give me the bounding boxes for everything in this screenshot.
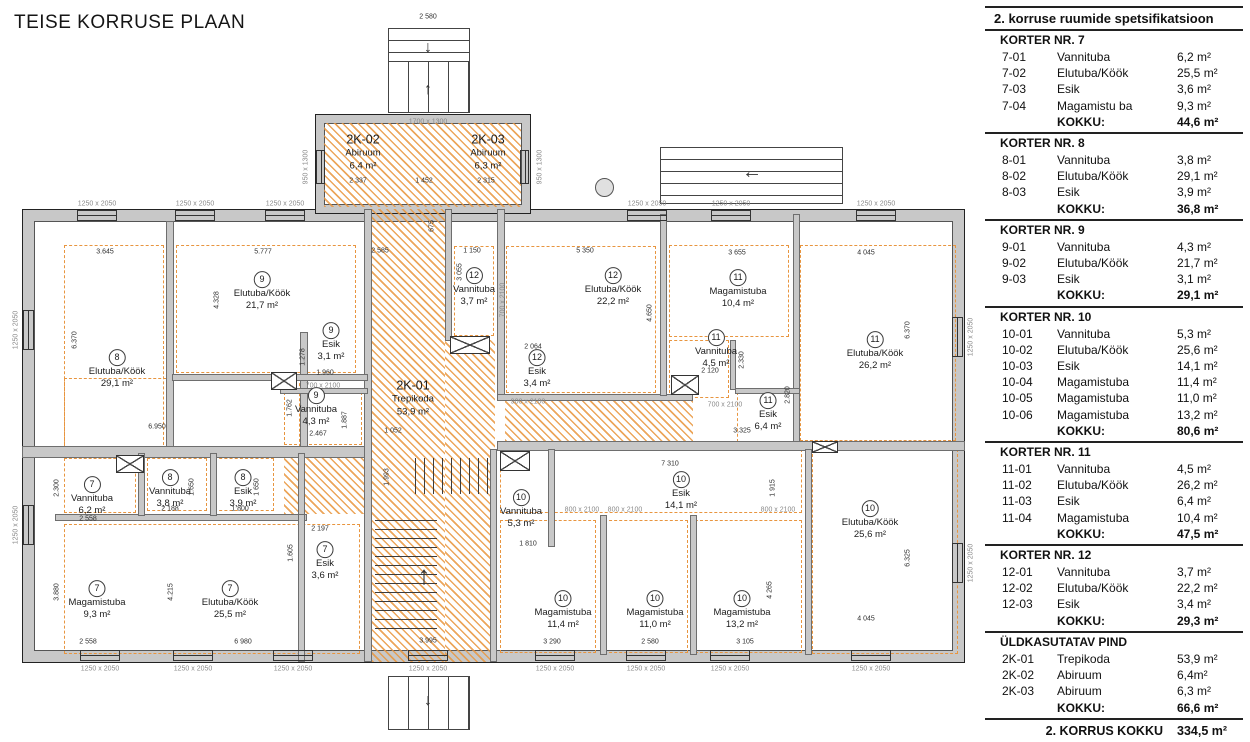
room-number-circle: 11 — [760, 392, 777, 409]
shaft-box — [450, 336, 490, 354]
total-label-cell: KOKKU: — [1057, 613, 1177, 629]
dimension-label: 7 310 — [661, 461, 679, 468]
opening-size-label: 1250 x 2050 — [627, 666, 666, 673]
spec-row: 8-03Esik3,9 m² — [985, 184, 1243, 200]
spacer-cell — [985, 700, 1057, 716]
room-code-cell: 11-03 — [985, 493, 1057, 509]
opening-size-label: 1250 x 2050 — [266, 201, 305, 208]
window — [856, 210, 896, 221]
wall — [166, 221, 174, 454]
dimension-label: 4.650 — [647, 304, 654, 322]
room-area: 26,2 m² — [859, 361, 891, 372]
window — [710, 650, 750, 661]
wall — [805, 449, 812, 655]
spec-row: 9-02Elutuba/Köök21,7 m² — [985, 255, 1243, 271]
room-label: 7Magamistuba9,3 m² — [68, 580, 125, 622]
opening-size-label: 800 x 2100 — [565, 507, 600, 514]
spec-section: KORTER NR. 88-01Vannituba3,8 m²8-02Elutu… — [985, 134, 1243, 221]
spec-row: 10-04Magamistuba11,4 m² — [985, 374, 1243, 390]
spec-section: KORTER NR. 1212-01Vannituba3,7 m²12-02El… — [985, 546, 1243, 633]
stair-treads — [415, 458, 489, 494]
room-name-cell: Magamistuba — [1057, 390, 1177, 406]
opening-size-label: 700 x 2100 — [306, 383, 341, 390]
spacer-cell — [985, 613, 1057, 629]
room-code-cell: 2K-03 — [985, 683, 1057, 699]
room-area-cell: 3,7 m² — [1177, 564, 1243, 580]
room-area-cell: 4,5 m² — [1177, 461, 1243, 477]
room-number-circle: 7 — [84, 476, 101, 493]
room-number-circle: 12 — [466, 267, 483, 284]
window — [80, 650, 120, 661]
opening-size-label: 800 x 2100 — [608, 507, 643, 514]
spec-row: 11-04Magamistuba10,4 m² — [985, 510, 1243, 526]
room-name: Magamistuba — [713, 607, 770, 618]
opening-size-label: 1250 x 2050 — [13, 311, 20, 350]
room-code-cell: 7-04 — [985, 98, 1057, 114]
room-name: Vannituba — [149, 486, 191, 497]
room-area: 25,5 m² — [214, 610, 246, 621]
room-number-circle: 11 — [730, 269, 747, 286]
room-name: Elutuba/Köök — [585, 284, 642, 295]
room-code-cell: 9-02 — [985, 255, 1057, 271]
spec-total-row: KOKKU:36,8 m² — [985, 201, 1243, 217]
room-name: Esik — [672, 488, 690, 499]
wall — [172, 374, 368, 381]
room-code-cell: 7-01 — [985, 49, 1057, 65]
room-area: 22,2 m² — [597, 297, 629, 308]
room-label: 12Elutuba/Köök22,2 m² — [585, 267, 642, 309]
total-label-cell: KOKKU: — [1057, 201, 1177, 217]
dimension-label: 1 150 — [463, 248, 481, 255]
opening-size-label: 1250 x 2050 — [536, 666, 575, 673]
dimension-label: 3.325 — [733, 428, 751, 435]
spec-section: ÜLDKASUTATAV PIND2K-01Trepikoda53,9 m²2K… — [985, 633, 1243, 720]
spec-section-title: KORTER NR. 11 — [985, 444, 1243, 461]
spec-row: 10-05Magamistuba11,0 m² — [985, 390, 1243, 406]
room-label: 11Vannituba4,5 m² — [695, 329, 737, 371]
hatch-area — [505, 401, 693, 441]
spec-section-title: KORTER NR. 7 — [985, 32, 1243, 49]
room-area-cell: 21,7 m² — [1177, 255, 1243, 271]
window — [520, 150, 529, 184]
room-name-cell: Elutuba/Köök — [1057, 65, 1177, 81]
room-area-cell: 25,5 m² — [1177, 65, 1243, 81]
room-name-cell: Vannituba — [1057, 49, 1177, 65]
dimension-label: 2 558 — [79, 639, 97, 646]
room-label: 2K-03Abiruum6,3 m² — [470, 131, 505, 172]
spec-footer: 2. KORRUS KOKKU 334,5 m² — [985, 720, 1243, 742]
dimension-label: 2 188 — [161, 506, 179, 513]
spec-row: 12-01Vannituba3,7 m² — [985, 564, 1243, 580]
dimension-label: 1.605 — [288, 544, 295, 562]
window — [173, 650, 213, 661]
wall — [548, 449, 555, 547]
wall — [497, 441, 965, 451]
room-area-cell: 29,1 m² — [1177, 168, 1243, 184]
opening-size-label: 1250 x 2050 — [174, 666, 213, 673]
dimension-label: 2.467 — [309, 431, 327, 438]
room-area-cell: 6,4 m² — [1177, 493, 1243, 509]
opening-size-label: 1250 x 2050 — [176, 201, 215, 208]
room-code-cell: 9-01 — [985, 239, 1057, 255]
shaft-box — [500, 451, 530, 471]
room-number-circle: 11 — [866, 331, 883, 348]
window — [711, 210, 751, 221]
wall — [660, 214, 667, 396]
room-name: Trepikoda — [392, 394, 434, 405]
dimension-label: 3.645 — [96, 249, 114, 256]
room-name-cell: Elutuba/Köök — [1057, 342, 1177, 358]
spec-total-row: KOKKU:29,1 m² — [985, 287, 1243, 303]
spec-section-title: KORTER NR. 9 — [985, 222, 1243, 239]
opening-size-label: 800 x 2100 — [761, 507, 796, 514]
room-label: 10Magamistuba13,2 m² — [713, 590, 770, 632]
room-code-cell: 11-01 — [985, 461, 1057, 477]
room-code-cell: 10-05 — [985, 390, 1057, 406]
room-name-cell: Vannituba — [1057, 461, 1177, 477]
spec-row: 9-03Esik3,1 m² — [985, 271, 1243, 287]
room-label: 7Vannituba6,2 m² — [71, 476, 113, 518]
wall — [298, 453, 305, 516]
spec-row: 12-03Esik3,4 m² — [985, 596, 1243, 612]
room-number-circle: 10 — [513, 489, 530, 506]
room-code-cell: 10-04 — [985, 374, 1057, 390]
dimension-label: 2 337 — [349, 178, 367, 185]
room-area: 14,1 m² — [665, 501, 697, 512]
spec-row: 11-01Vannituba4,5 m² — [985, 461, 1243, 477]
room-name: Vannituba — [71, 493, 113, 504]
wall — [490, 449, 497, 662]
room-code-cell: 11-04 — [985, 510, 1057, 526]
spacer-cell — [985, 201, 1057, 217]
dimension-label: 6.950 — [148, 424, 166, 431]
opening-size-label: 700 x 2100 — [708, 402, 743, 409]
room-name-cell: Magamistuba — [1057, 407, 1177, 423]
room-area-cell: 22,2 m² — [1177, 580, 1243, 596]
spec-section: KORTER NR. 1111-01Vannituba4,5 m²11-02El… — [985, 443, 1243, 546]
spec-section: KORTER NR. 1010-01Vannituba5,3 m²10-02El… — [985, 308, 1243, 443]
window — [851, 650, 891, 661]
room-name-cell: Elutuba/Köök — [1057, 580, 1177, 596]
room-name-cell: Esik — [1057, 596, 1177, 612]
dimension-label: 2 585 — [371, 248, 389, 255]
room-label: 9Vannituba4,3 m² — [295, 387, 337, 429]
room-name: Esik — [322, 339, 340, 350]
room-code-cell: 8-03 — [985, 184, 1057, 200]
room-name: Magamistuba — [68, 597, 125, 608]
window — [265, 210, 305, 221]
total-label-cell: KOKKU: — [1057, 287, 1177, 303]
wall — [600, 515, 607, 655]
room-label: 7Elutuba/Köök25,5 m² — [202, 580, 259, 622]
room-name-cell: Vannituba — [1057, 326, 1177, 342]
window — [273, 650, 313, 661]
room-label: 9Esik3,1 m² — [318, 322, 345, 364]
room-code-cell: 10-06 — [985, 407, 1057, 423]
spec-row: 10-01Vannituba5,3 m² — [985, 326, 1243, 342]
spec-section-title: KORTER NR. 12 — [985, 547, 1243, 564]
dimension-label: 3.995 — [419, 638, 437, 645]
room-number-circle: 10 — [861, 500, 878, 517]
room-number-circle: 9 — [323, 322, 340, 339]
shaft-box — [116, 455, 144, 473]
room-name-cell: Vannituba — [1057, 152, 1177, 168]
total-value-cell: 29,3 m² — [1177, 613, 1243, 629]
total-label-cell: KOKKU: — [1057, 526, 1177, 542]
total-value-cell: 80,6 m² — [1177, 423, 1243, 439]
room-name-cell: Vannituba — [1057, 239, 1177, 255]
dimension-label: 5.777 — [254, 249, 272, 256]
spec-section-title: KORTER NR. 8 — [985, 135, 1243, 152]
room-name-cell: Trepikoda — [1057, 651, 1177, 667]
window — [77, 210, 117, 221]
dimension-label: 6.370 — [72, 331, 79, 349]
spec-row: 11-03Esik6,4 m² — [985, 493, 1243, 509]
room-name-cell: Esik — [1057, 184, 1177, 200]
room-name: Elutuba/Köök — [202, 597, 259, 608]
room-name: Vannituba — [453, 284, 495, 295]
room-number-circle: 7 — [221, 580, 238, 597]
room-label: 10Vannituba5,3 m² — [500, 489, 542, 531]
dimension-label: 1.650 — [189, 478, 196, 496]
room-number-circle: 11 — [708, 329, 725, 346]
room-name-cell: Elutuba/Köök — [1057, 477, 1177, 493]
spec-table-body: KORTER NR. 77-01Vannituba6,2 m²7-02Elutu… — [985, 31, 1243, 720]
room-name-cell: Abiruum — [1057, 667, 1177, 683]
room-code-cell: 12-01 — [985, 564, 1057, 580]
wall — [445, 209, 452, 341]
room-code-cell: 2K-01 — [985, 651, 1057, 667]
room-area-cell: 10,4 m² — [1177, 510, 1243, 526]
room-label: 9Elutuba/Köök21,7 m² — [234, 271, 291, 313]
dimension-label: 1 810 — [519, 541, 537, 548]
room-number-circle: 10 — [647, 590, 664, 607]
apartment-outline — [500, 449, 802, 513]
spacer-cell — [985, 287, 1057, 303]
room-number-circle: 8 — [108, 349, 125, 366]
window — [627, 210, 667, 221]
dimension-label: 2 064 — [524, 344, 542, 351]
spec-row: 7-02Elutuba/Köök25,5 m² — [985, 65, 1243, 81]
spec-row: 7-04Magamistu ba9,3 m² — [985, 98, 1243, 114]
dimension-label: 1 650 — [254, 478, 261, 496]
dimension-label: 2 580 — [641, 639, 659, 646]
window — [175, 210, 215, 221]
room-name: Elutuba/Köök — [89, 366, 146, 377]
room-name-cell: Magamistuba — [1057, 374, 1177, 390]
room-label: 10Elutuba/Köök25,6 m² — [842, 500, 899, 542]
spec-row: 10-06Magamistuba13,2 m² — [985, 407, 1243, 423]
chimney — [595, 178, 614, 197]
room-number-circle: 7 — [89, 580, 106, 597]
spec-section: KORTER NR. 99-01Vannituba4,3 m²9-02Elutu… — [985, 221, 1243, 308]
opening-size-label: 1250 x 2050 — [857, 201, 896, 208]
room-area: 9,3 m² — [84, 610, 111, 621]
room-area: 3,6 m² — [312, 571, 339, 582]
opening-size-label: 1250 x 2050 — [81, 666, 120, 673]
shaft-box — [271, 372, 297, 390]
spacer-cell — [985, 526, 1057, 542]
room-area-cell: 3,1 m² — [1177, 271, 1243, 287]
shaft-box — [671, 375, 699, 395]
room-label: 7Esik3,6 m² — [312, 541, 339, 583]
spec-section: KORTER NR. 77-01Vannituba6,2 m²7-02Elutu… — [985, 31, 1243, 134]
dimension-label: 1.993 — [384, 468, 391, 486]
room-code: 2K-02 — [346, 132, 379, 146]
room-number-circle: 10 — [555, 590, 572, 607]
dimension-label: 3 105 — [736, 639, 754, 646]
room-name-cell: Esik — [1057, 493, 1177, 509]
room-label: 10Magamistuba11,0 m² — [626, 590, 683, 632]
wall — [690, 515, 697, 655]
room-code-cell: 7-02 — [985, 65, 1057, 81]
room-area-cell: 3,8 m² — [1177, 152, 1243, 168]
dimension-label: 675 — [429, 220, 436, 232]
room-name: Elutuba/Köök — [842, 517, 899, 528]
wall — [364, 209, 372, 662]
direction-arrow-icon: ↑ — [418, 562, 431, 588]
opening-size-label: 1250 x 2050 — [78, 201, 117, 208]
total-value-cell: 66,6 m² — [1177, 700, 1243, 716]
room-name-cell: Esik — [1057, 271, 1177, 287]
room-area-cell: 11,4 m² — [1177, 374, 1243, 390]
dimension-label: 6 980 — [234, 639, 252, 646]
room-code-cell: 7-03 — [985, 81, 1057, 97]
room-number-circle: 12 — [529, 349, 546, 366]
dimension-label: 4 265 — [767, 581, 774, 599]
spec-row: 10-02Elutuba/Köök25,6 m² — [985, 342, 1243, 358]
floor-plan: TEISE KORRUSE PLAAN — [0, 0, 985, 736]
total-label-cell: KOKKU: — [1057, 700, 1177, 716]
dimension-label: 1 800 — [231, 506, 249, 513]
wall — [22, 446, 372, 458]
room-area: 6,4 m² — [350, 160, 377, 171]
total-value-cell: 29,1 m² — [1177, 287, 1243, 303]
room-area-cell: 4,3 m² — [1177, 239, 1243, 255]
spec-row: 2K-01Trepikoda53,9 m² — [985, 651, 1243, 667]
page-title: TEISE KORRUSE PLAAN — [14, 12, 245, 34]
room-label: 10Magamistuba11,4 m² — [534, 590, 591, 632]
room-name: Elutuba/Köök — [847, 348, 904, 359]
room-name-cell: Magamistu ba — [1057, 98, 1177, 114]
room-area: 29,1 m² — [101, 379, 133, 390]
spacer-cell — [985, 114, 1057, 130]
dimension-label: 3 655 — [728, 250, 746, 257]
room-number-circle: 9 — [253, 271, 270, 288]
room-name: Magamistuba — [709, 286, 766, 297]
spec-row: 12-02Elutuba/Köök22,2 m² — [985, 580, 1243, 596]
direction-arrow-icon: ← — [742, 162, 762, 182]
room-number-circle: 10 — [673, 471, 690, 488]
spec-table-title: 2. korruse ruumide spetsifikatsioon — [985, 6, 1243, 31]
spec-total-row: KOKKU:80,6 m² — [985, 423, 1243, 439]
total-label-cell: KOKKU: — [1057, 114, 1177, 130]
room-area: 4,3 m² — [303, 417, 330, 428]
dimension-label: 2.300 — [54, 479, 61, 497]
apartment-outline — [812, 449, 958, 654]
room-code-cell: 10-02 — [985, 342, 1057, 358]
dimension-label: 2.330 — [739, 351, 746, 369]
room-name: Magamistuba — [534, 607, 591, 618]
opening-size-label: 1250 x 2050 — [13, 506, 20, 545]
room-area: 10,4 m² — [722, 299, 754, 310]
window — [952, 317, 963, 357]
spec-total-row: KOKKU:44,6 m² — [985, 114, 1243, 130]
room-number-circle: 7 — [317, 541, 334, 558]
window — [626, 650, 666, 661]
room-area-cell: 5,3 m² — [1177, 326, 1243, 342]
room-label: 11Elutuba/Köök26,2 m² — [847, 331, 904, 373]
dimension-label: 1.762 — [287, 399, 294, 417]
dimension-label: 2 315 — [477, 178, 495, 185]
room-name-cell: Esik — [1057, 358, 1177, 374]
opening-size-label: 1250 x 2050 — [968, 318, 975, 357]
room-area: 3,7 m² — [461, 297, 488, 308]
opening-size-label: 900 x 2100 — [511, 399, 546, 406]
room-name: Esik — [234, 486, 252, 497]
room-area-cell: 3,6 m² — [1177, 81, 1243, 97]
dimension-label: 2 580 — [419, 14, 437, 21]
room-code-cell: 10-01 — [985, 326, 1057, 342]
room-code-cell: 9-03 — [985, 271, 1057, 287]
spec-row: 8-02Elutuba/Köök29,1 m² — [985, 168, 1243, 184]
spec-footer-label: 2. KORRUS KOKKU — [985, 720, 1177, 742]
room-area: 11,4 m² — [547, 620, 579, 631]
room-name: Vannituba — [500, 506, 542, 517]
room-name: Esik — [316, 558, 334, 569]
room-code-cell: 2K-02 — [985, 667, 1057, 683]
room-number-circle: 8 — [235, 469, 252, 486]
dimension-label: 4 045 — [857, 250, 875, 257]
room-label: 11Magamistuba10,4 m² — [709, 269, 766, 311]
room-name: Abiruum — [470, 148, 505, 159]
hatch-area — [445, 340, 495, 662]
room-label: 8Elutuba/Köök29,1 m² — [89, 349, 146, 391]
dimension-label: 1 452 — [415, 178, 433, 185]
room-code-cell: 8-01 — [985, 152, 1057, 168]
room-area-cell: 3,4 m² — [1177, 596, 1243, 612]
room-label: 2K-01Trepikoda53,9 m² — [392, 377, 434, 418]
dimension-label: 4.215 — [168, 583, 175, 601]
room-name-cell: Elutuba/Köök — [1057, 255, 1177, 271]
opening-size-label: 950 x 1300 — [537, 150, 544, 185]
dimension-label: 6.370 — [905, 321, 912, 339]
opening-size-label: 700 x 2100 — [500, 283, 507, 318]
dimension-label: 3 055 — [457, 263, 464, 281]
dimension-label: 3.880 — [54, 583, 61, 601]
room-number-circle: 9 — [308, 387, 325, 404]
opening-size-label: 1250 x 2050 — [274, 666, 313, 673]
dimension-label: 5 350 — [576, 248, 594, 255]
dimension-label: 3 290 — [543, 639, 561, 646]
room-area: 13,2 m² — [726, 620, 758, 631]
dimension-label: 1 052 — [384, 428, 402, 435]
spec-section-title: KORTER NR. 10 — [985, 309, 1243, 326]
spec-total-row: KOKKU:47,5 m² — [985, 526, 1243, 542]
room-name-cell: Abiruum — [1057, 683, 1177, 699]
direction-arrow-icon: ↓ — [424, 40, 432, 56]
room-area: 53,9 m² — [397, 406, 429, 417]
room-name: Abiruum — [345, 148, 380, 159]
spec-row: 7-01Vannituba6,2 m² — [985, 49, 1243, 65]
apartment-outline — [695, 520, 802, 653]
spec-row: 2K-02Abiruum6,4m² — [985, 667, 1243, 683]
apartment-outline — [604, 520, 688, 653]
room-code-cell: 8-02 — [985, 168, 1057, 184]
room-area: 6,3 m² — [475, 160, 502, 171]
room-label: 10Esik14,1 m² — [665, 471, 697, 513]
room-area-cell: 6,2 m² — [1177, 49, 1243, 65]
